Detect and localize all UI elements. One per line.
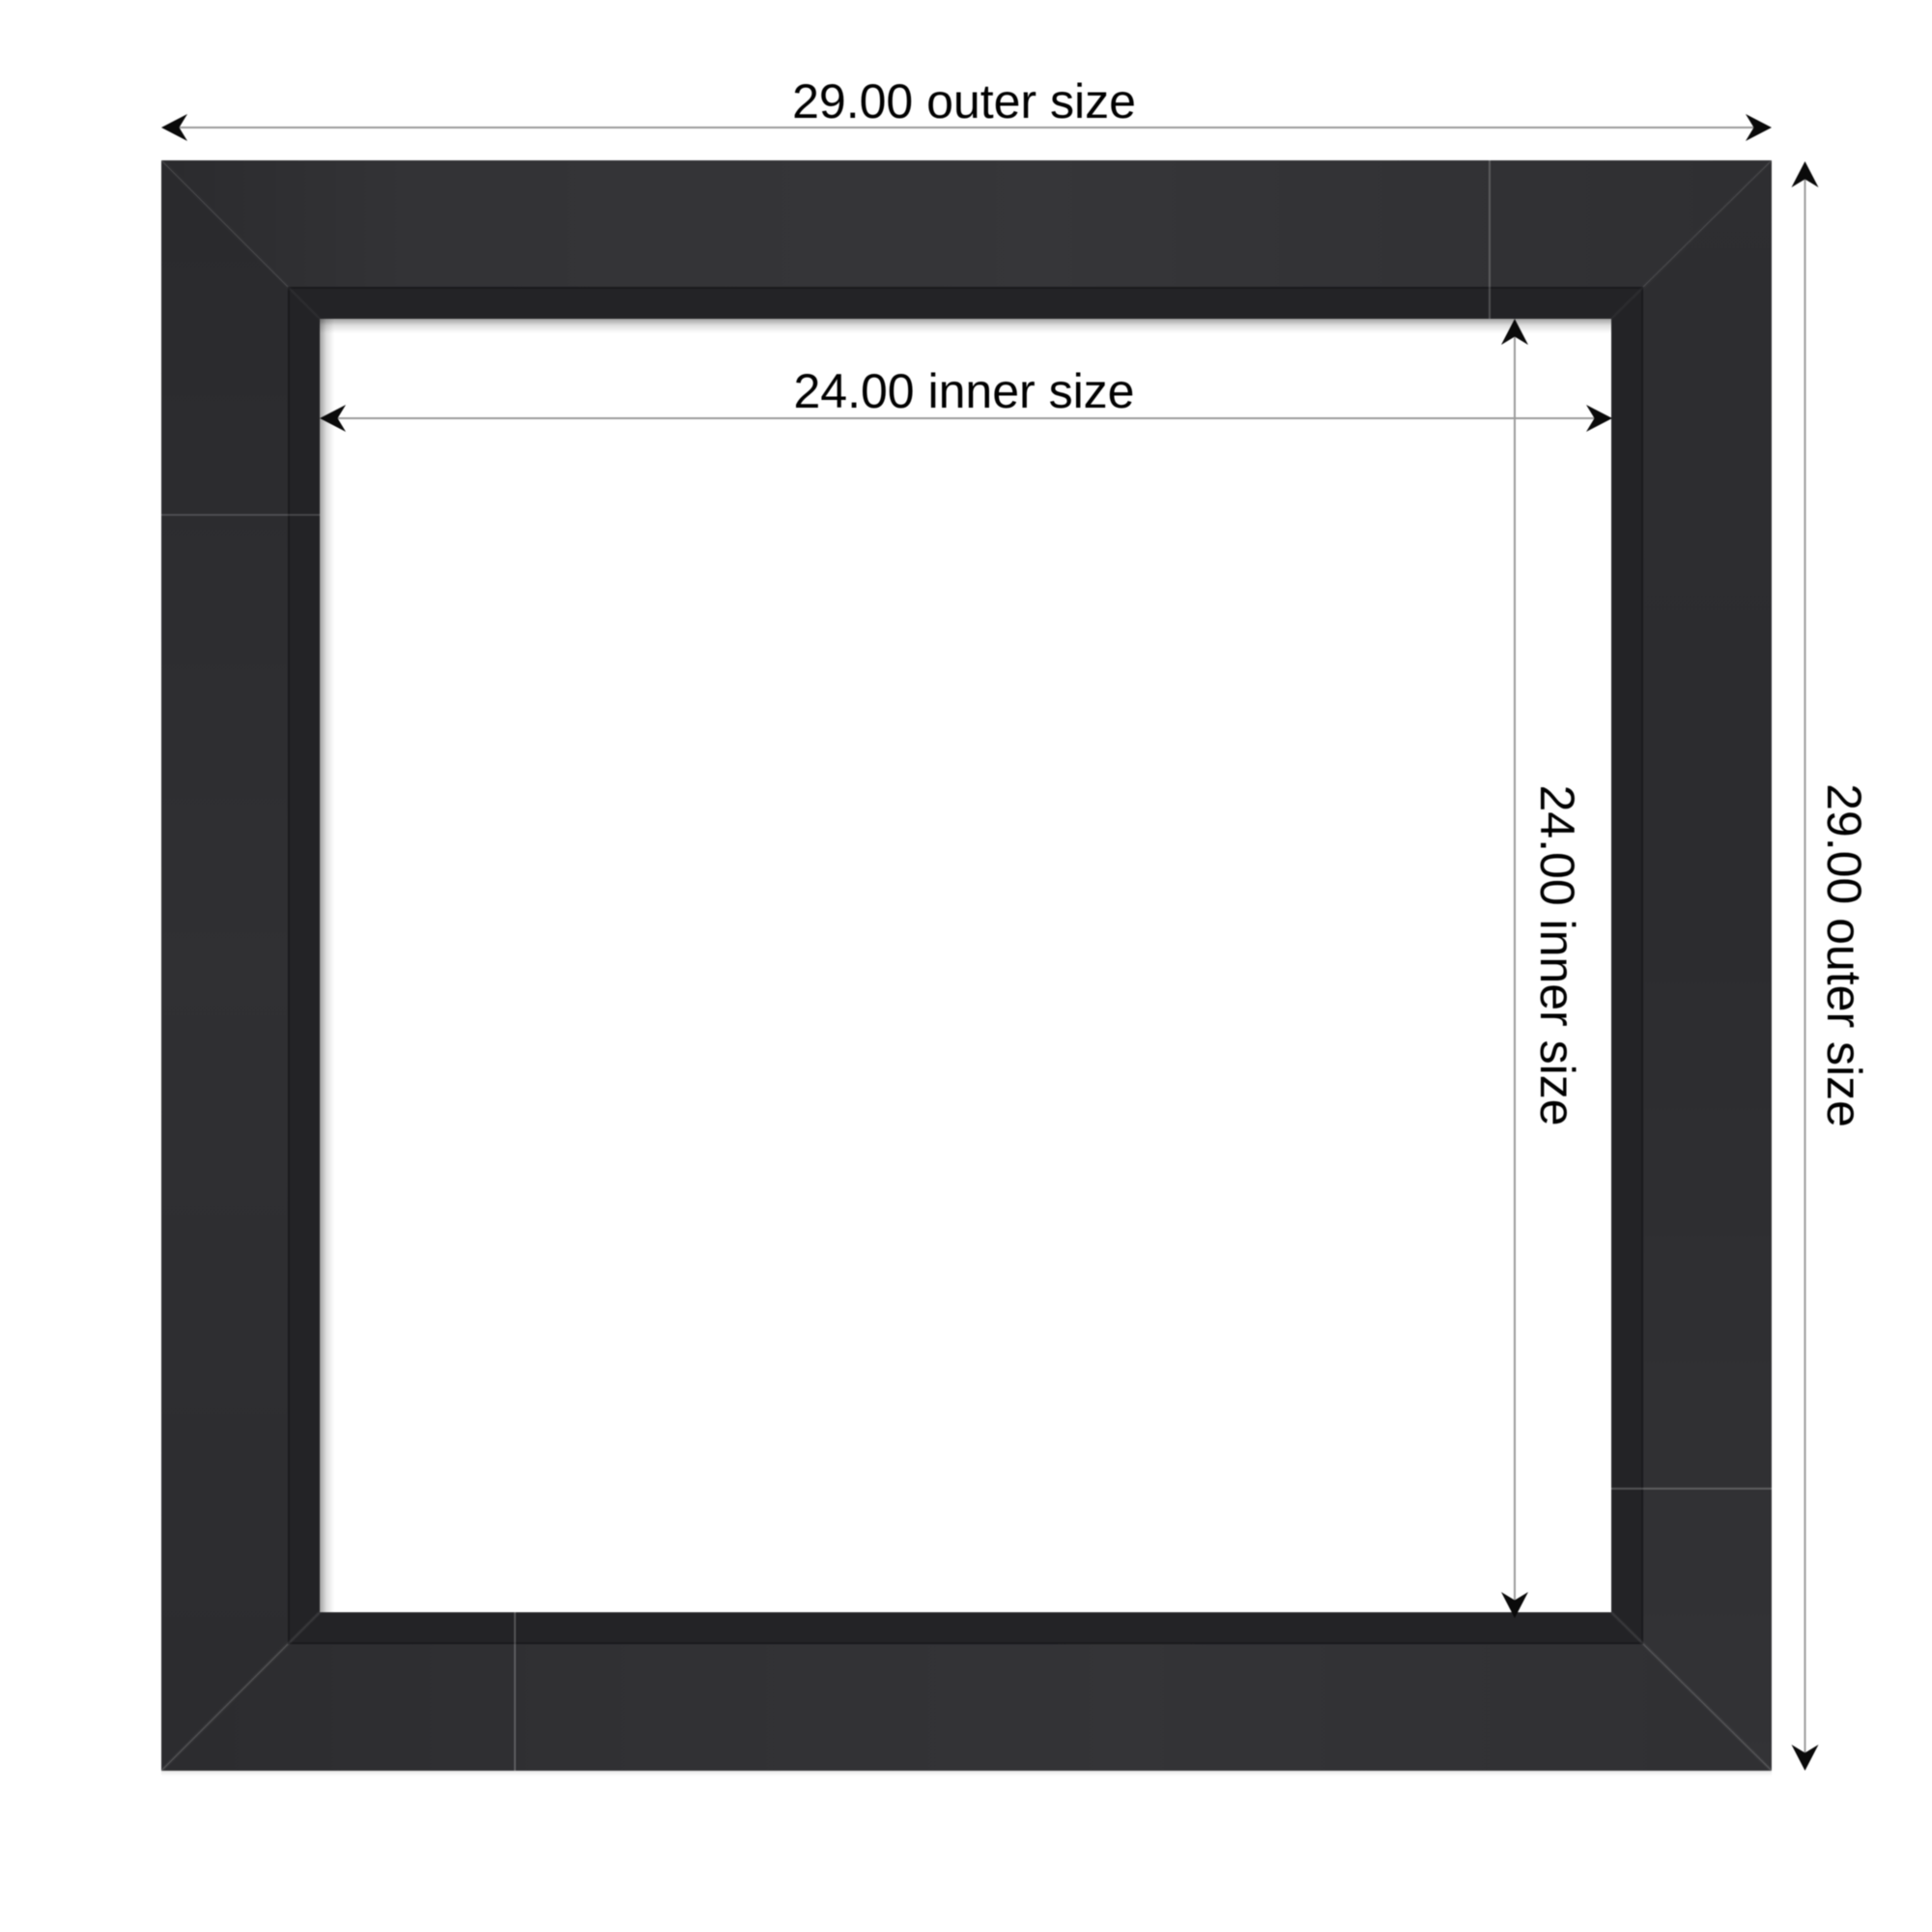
svg-text:24.00 inner size: 24.00 inner size [793, 364, 1134, 418]
svg-text:29.00 outer size: 29.00 outer size [792, 74, 1136, 128]
svg-text:24.00 inner size: 24.00 inner size [1530, 784, 1584, 1125]
svg-text:29.00 outer size: 29.00 outer size [1817, 783, 1871, 1127]
